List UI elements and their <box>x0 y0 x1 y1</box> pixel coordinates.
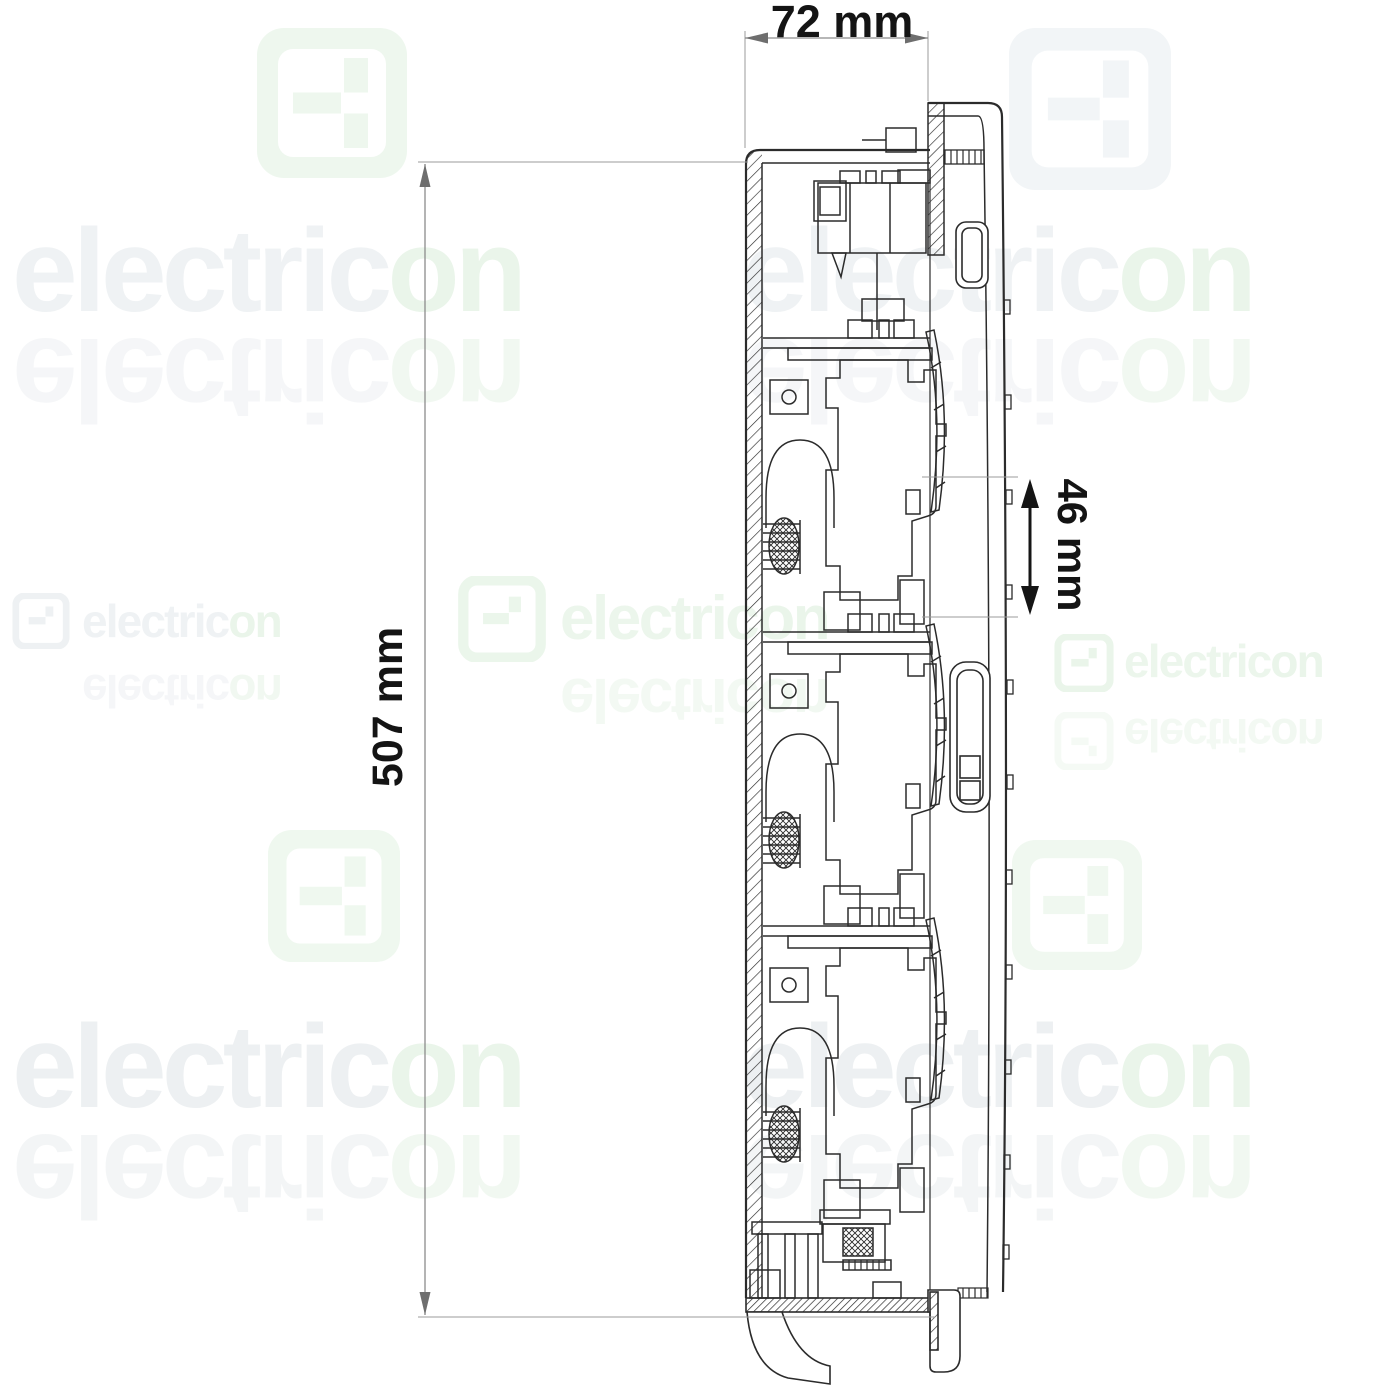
mounting-plate-foot <box>928 1290 960 1372</box>
device-cross-section-drawing <box>0 0 1400 1400</box>
socket-module <box>763 320 946 630</box>
technical-drawing-page: electricon electricon electricon electri… <box>0 0 1400 1400</box>
width-dimension-label: 72 mm <box>752 0 932 48</box>
bottom-clamp-assembly <box>750 1210 901 1298</box>
plate-latch-small <box>956 222 988 288</box>
enclosure-bottom <box>746 1298 932 1384</box>
top-clamp-assembly <box>814 128 930 330</box>
socket-module <box>763 614 946 924</box>
dimension-width-72mm <box>745 31 928 148</box>
height-dimension-label: 507 mm <box>288 607 488 807</box>
plate-latch-large <box>950 662 990 812</box>
spacing-dimension-label: 46 mm <box>972 445 1172 645</box>
socket-module <box>763 908 946 1218</box>
dimension-height-507mm <box>418 162 935 1317</box>
